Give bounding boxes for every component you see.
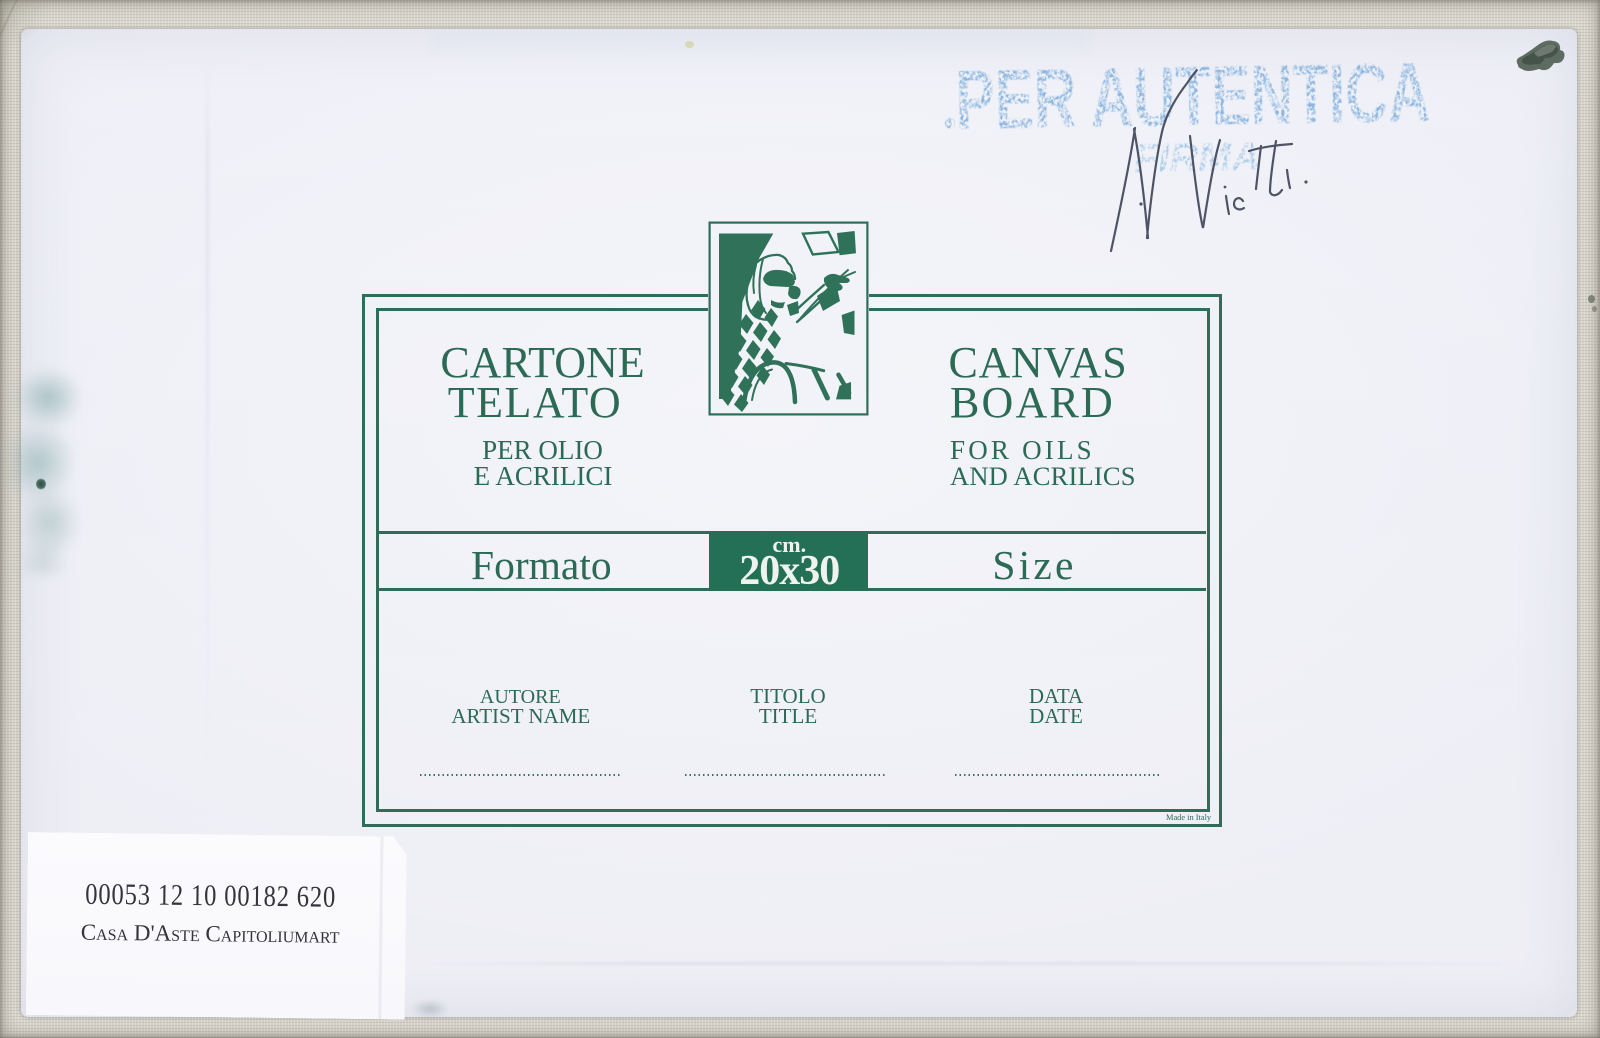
- svg-text:PER AUTENTICA: PER AUTENTICA: [955, 45, 1431, 147]
- svg-text:FIRMA: FIRMA: [1133, 135, 1260, 181]
